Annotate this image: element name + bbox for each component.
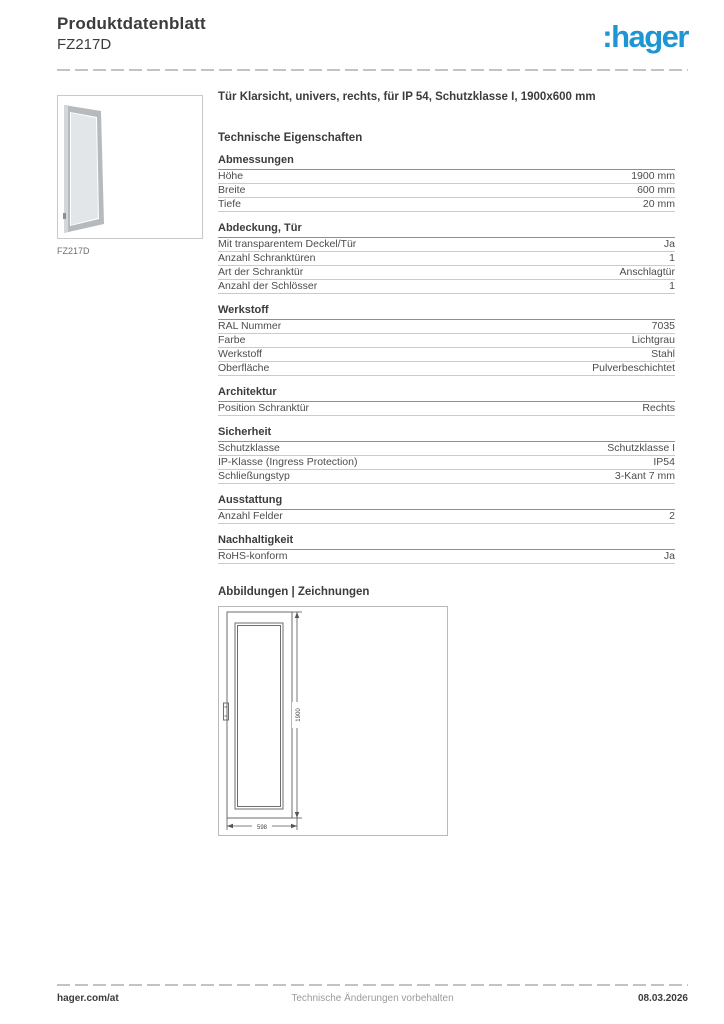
section-rows: Anzahl Felder2 — [218, 510, 675, 524]
spec-label: Position Schranktür — [218, 402, 309, 414]
footer-disclaimer: Technische Änderungen vorbehalten — [57, 993, 688, 1004]
datasheet-page: Produktdatenblatt FZ217D :hager FZ217D T… — [0, 0, 724, 1024]
spec-value: 1900 mm — [631, 170, 675, 182]
door-photo-illustration — [58, 96, 202, 238]
drawings-heading: Abbildungen | Zeichnungen — [218, 586, 675, 598]
section-rows: Mit transparentem Deckel/TürJaAnzahl Sch… — [218, 238, 675, 294]
spec-label: Schutzklasse — [218, 442, 280, 454]
spec-value: Anschlagtür — [620, 266, 675, 278]
spec-value: Ja — [664, 550, 675, 562]
product-title: Tür Klarsicht, univers, rechts, für IP 5… — [218, 90, 675, 106]
spec-row: Anzahl Schranktüren1 — [218, 252, 675, 266]
spec-value: 1 — [669, 280, 675, 292]
spec-row: RAL Nummer7035 — [218, 320, 675, 334]
photo-caption: FZ217D — [57, 246, 203, 256]
spec-value: Schutzklasse I — [607, 442, 675, 454]
drawing-height-label: 1900 — [296, 707, 302, 721]
technical-drawing: 1900 598 — [218, 606, 448, 836]
section-rows: RAL Nummer7035FarbeLichtgrauWerkstoffSta… — [218, 320, 675, 376]
spec-label: IP-Klasse (Ingress Protection) — [218, 456, 357, 468]
spec-value: IP54 — [653, 456, 675, 468]
section-rows: Höhe1900 mmBreite600 mmTiefe20 mm — [218, 170, 675, 212]
spec-label: Anzahl der Schlösser — [218, 280, 317, 292]
section-title: Werkstoff — [218, 304, 675, 320]
spec-label: Höhe — [218, 170, 243, 182]
spec-row: FarbeLichtgrau — [218, 334, 675, 348]
spec-label: Anzahl Felder — [218, 510, 283, 522]
page-header: Produktdatenblatt FZ217D :hager — [57, 14, 688, 53]
spec-value: Lichtgrau — [632, 334, 675, 346]
section-title: Nachhaltigkeit — [218, 534, 675, 550]
spec-row: RoHS-konformJa — [218, 550, 675, 564]
spec-label: Anzahl Schranktüren — [218, 252, 315, 264]
tech-sections: Abmessungen Höhe1900 mmBreite600 mmTiefe… — [218, 154, 675, 564]
section-rows: RoHS-konformJa — [218, 550, 675, 564]
spec-label: Tiefe — [218, 198, 241, 210]
section-title: Architektur — [218, 386, 675, 402]
spec-label: Werkstoff — [218, 348, 262, 360]
product-photo — [57, 95, 203, 239]
hager-logo: :hager — [602, 19, 688, 55]
spec-section: Werkstoff RAL Nummer7035FarbeLichtgrauWe… — [218, 304, 675, 376]
section-title: Sicherheit — [218, 426, 675, 442]
tech-properties-heading: Technische Eigenschaften — [218, 132, 675, 144]
spec-value: 600 mm — [637, 184, 675, 196]
spec-label: Art der Schranktür — [218, 266, 303, 278]
spec-row: Höhe1900 mm — [218, 170, 675, 184]
spec-section: Abdeckung, Tür Mit transparentem Deckel/… — [218, 222, 675, 294]
spec-value: Ja — [664, 238, 675, 250]
spec-row: Breite600 mm — [218, 184, 675, 198]
spec-section: Architektur Position SchranktürRechts — [218, 386, 675, 416]
section-title: Abmessungen — [218, 154, 675, 170]
spec-row: Tiefe20 mm — [218, 198, 675, 212]
footer-date: 08.03.2026 — [638, 993, 688, 1004]
spec-row: IP-Klasse (Ingress Protection)IP54 — [218, 456, 675, 470]
spec-label: Breite — [218, 184, 245, 196]
product-reference: FZ217D — [57, 36, 688, 53]
spec-label: RAL Nummer — [218, 320, 281, 332]
product-photo-column: FZ217D — [57, 95, 203, 256]
spec-section: Abmessungen Höhe1900 mmBreite600 mmTiefe… — [218, 154, 675, 212]
spec-row: Anzahl der Schlösser1 — [218, 280, 675, 294]
spec-label: Oberfläche — [218, 362, 269, 374]
spec-label: Schließungstyp — [218, 470, 290, 482]
spec-row: OberflächePulverbeschichtet — [218, 362, 675, 376]
spec-row: Schließungstyp3-Kant 7 mm — [218, 470, 675, 484]
spec-row: SchutzklasseSchutzklasse I — [218, 442, 675, 456]
spec-row: Art der SchranktürAnschlagtür — [218, 266, 675, 280]
spec-value: 20 mm — [643, 198, 675, 210]
section-title: Abdeckung, Tür — [218, 222, 675, 238]
spec-value: Rechts — [642, 402, 675, 414]
spec-value: Stahl — [651, 348, 675, 360]
section-rows: SchutzklasseSchutzklasse IIP-Klasse (Ing… — [218, 442, 675, 484]
section-title: Ausstattung — [218, 494, 675, 510]
spec-value: 2 — [669, 510, 675, 522]
spec-section: Nachhaltigkeit RoHS-konformJa — [218, 534, 675, 564]
spec-row: Anzahl Felder2 — [218, 510, 675, 524]
spec-label: Farbe — [218, 334, 245, 346]
main-content: Tür Klarsicht, univers, rechts, für IP 5… — [218, 90, 675, 836]
spec-label: Mit transparentem Deckel/Tür — [218, 238, 356, 250]
spec-value: 7035 — [652, 320, 675, 332]
document-title: Produktdatenblatt — [57, 14, 688, 34]
footer-divider — [57, 984, 688, 986]
spec-row: Mit transparentem Deckel/TürJa — [218, 238, 675, 252]
spec-value: Pulverbeschichtet — [592, 362, 675, 374]
spec-label: RoHS-konform — [218, 550, 287, 562]
spec-row: Position SchranktürRechts — [218, 402, 675, 416]
section-rows: Position SchranktürRechts — [218, 402, 675, 416]
spec-value: 3-Kant 7 mm — [615, 470, 675, 482]
drawing-width-label: 598 — [257, 825, 268, 831]
spec-section: Sicherheit SchutzklasseSchutzklasse IIP-… — [218, 426, 675, 484]
spec-section: Ausstattung Anzahl Felder2 — [218, 494, 675, 524]
header-divider — [57, 69, 688, 71]
spec-value: 1 — [669, 252, 675, 264]
spec-row: WerkstoffStahl — [218, 348, 675, 362]
door-dimension-drawing: 1900 598 — [219, 607, 447, 835]
